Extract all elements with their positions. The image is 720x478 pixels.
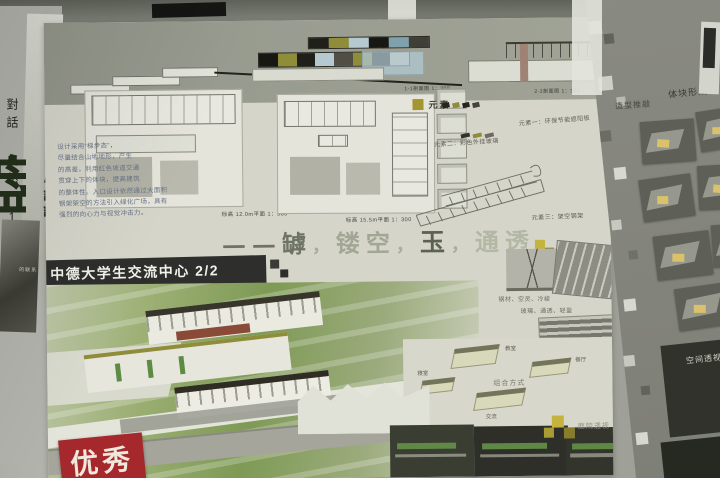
calligraphy-segment: ， xyxy=(312,236,336,257)
render-photo xyxy=(390,424,475,477)
plan-poche xyxy=(346,163,380,195)
unit-label: 教室 xyxy=(505,344,516,352)
excellent-stamp: 优秀 xyxy=(58,432,146,478)
wall-fixture-bar xyxy=(152,2,226,18)
calligraphy-segment: 镂空 xyxy=(336,228,396,258)
substructure xyxy=(252,67,384,81)
model-photo xyxy=(711,222,720,267)
section-core xyxy=(520,44,528,82)
plan-stair xyxy=(318,135,348,147)
colored-section-strip xyxy=(308,36,430,49)
dark-render-photo xyxy=(661,431,720,478)
mosaic-square xyxy=(623,355,635,367)
board-title: 中德大学生交流中心 2/2 xyxy=(50,262,219,282)
calligraphy-glyph-fragment: 盘 xyxy=(0,144,26,230)
mosaic-square xyxy=(614,167,627,180)
materials-line1: 钢材、空灵、冷峻 xyxy=(498,294,550,304)
element1-sketch-marks xyxy=(442,94,482,112)
calligraphy-segment: ， xyxy=(451,234,475,255)
yellow-square-icon xyxy=(544,428,554,438)
mosaic-square xyxy=(600,130,612,142)
space-perspective-panel: 空间透视 xyxy=(660,335,720,438)
unit-label: 餐厅 xyxy=(575,355,586,363)
green-fin xyxy=(115,363,122,381)
mosaic-square xyxy=(623,298,636,311)
olive-square-icon xyxy=(412,99,423,110)
calligraphy-segment: 玉 xyxy=(420,228,451,257)
massing-block xyxy=(529,358,571,378)
mosaic-square xyxy=(628,250,638,260)
massing-block xyxy=(450,344,499,369)
plan-poche xyxy=(290,157,340,195)
combination-label: 组合方式 xyxy=(493,378,525,388)
unit-label: 寝室 xyxy=(417,369,428,377)
corner-poster-sliver xyxy=(699,22,720,95)
mosaic-square xyxy=(635,432,648,445)
plan-wing xyxy=(91,94,235,126)
stamp-text: 优秀 xyxy=(68,437,136,478)
model-photo xyxy=(695,105,720,152)
calligraphy-line: ——罅，镂空，玉，通透 xyxy=(222,222,552,263)
render-photo xyxy=(474,426,569,477)
model-photo xyxy=(640,118,697,164)
roof-structure-photo xyxy=(552,240,614,301)
title-square-icon xyxy=(280,269,288,277)
wall-gap-strip xyxy=(572,0,602,95)
calligraphy-segment: ， xyxy=(396,235,420,256)
element1-label: 元素一：环保节能遮阳板 xyxy=(518,113,590,128)
green-fin xyxy=(178,356,185,374)
courtyard-caption: 庭院透视 xyxy=(578,421,610,431)
mosaic-square xyxy=(641,385,651,395)
model-photo xyxy=(638,173,695,222)
section-drawing-1: 1-1剖面图 1：300 xyxy=(212,31,465,100)
combination-diagram: 组合方式 教室 餐厅 寝室 交流 xyxy=(419,343,612,431)
left-bw-photo: 的联系 xyxy=(0,219,40,332)
main-presentation-board: 1-1剖面图 1：300 2-2剖面图 1：300 标高 12.0m平面 1：3… xyxy=(44,17,614,478)
calligraphy-segment: ——罅 xyxy=(222,229,312,259)
unit-label: 交流 xyxy=(486,412,497,420)
step xyxy=(162,67,218,78)
materials-line2: 玻璃、通透、轻盈 xyxy=(521,305,573,315)
green-fin xyxy=(147,360,154,378)
mosaic-square xyxy=(611,219,622,230)
element3-label: 元素三：架空钢架 xyxy=(531,210,583,221)
space-perspective-label: 空间透视 xyxy=(686,352,720,367)
form-study-label: 造型推敲 xyxy=(615,98,652,111)
model-photo xyxy=(653,230,714,280)
corner-poster-glyph xyxy=(703,28,716,68)
yellow-square-icon xyxy=(552,416,564,428)
building-block xyxy=(145,291,323,345)
plan-wing xyxy=(284,101,376,127)
model-photo xyxy=(697,163,720,210)
title-square-icon xyxy=(270,260,279,269)
left-photo-caption: 的联系 xyxy=(19,266,37,274)
photo-of-presentation-boards: 中德文化交流中心設計 對話 自然 1 盘 的联系 1-1剖面图 1：300 xyxy=(0,0,720,478)
mosaic-square xyxy=(604,33,615,44)
model-photo xyxy=(674,282,720,331)
massing-block xyxy=(473,387,526,410)
olive-square-icon xyxy=(564,427,575,438)
design-note: 设计采用“梯步态”， 尽量结合山地地形，产生 的高差，利用红色坡道交通 贯穿上下… xyxy=(57,138,187,221)
